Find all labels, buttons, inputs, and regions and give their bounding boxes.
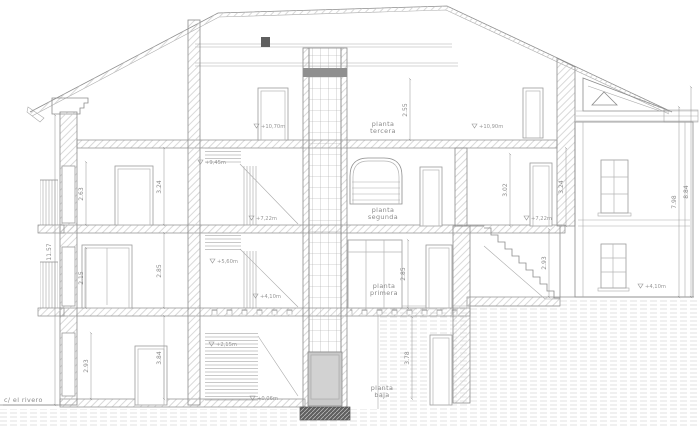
- dim-t3-floor: 3.24: [156, 180, 163, 194]
- rear-window-lower: [601, 244, 626, 288]
- elevator-pit: [300, 407, 350, 420]
- window-in-wall-t3: [62, 166, 75, 223]
- svg-text:+7,22m: +7,22m: [256, 216, 277, 222]
- stair-door-t3: [258, 88, 288, 140]
- label-planta-tercera-2: tercera: [370, 127, 396, 135]
- dim-t1-floor: 3.84: [156, 351, 163, 365]
- label-planta-primera-2: primera: [370, 289, 398, 297]
- roof: [27, 6, 698, 122]
- rear-stair-steps: [484, 228, 560, 298]
- svg-text:+10,90m: +10,90m: [479, 124, 503, 130]
- section-drawing: 11.57 2.63 3.24 2.15 2.85 2.93 3.84 2.55…: [0, 0, 700, 432]
- dim-right-outer: 8.84: [683, 185, 690, 199]
- elevator-head-band: [303, 68, 347, 77]
- wall-stair-left: [188, 20, 200, 405]
- arched-window-segunda: [350, 158, 402, 204]
- level-marker-945: +9,45m: [198, 160, 226, 166]
- treads-landing-560: [205, 233, 241, 250]
- door-primera-center: [426, 245, 452, 308]
- glazing-primera-center: [348, 240, 402, 308]
- elevator-shaft: [300, 48, 350, 420]
- label-planta-baja-2: baja: [374, 391, 389, 399]
- dim-right-inner: 7.98: [671, 195, 678, 209]
- dim-t1-opening: 2.93: [83, 359, 90, 373]
- pediment-vent-triangle: [592, 92, 617, 105]
- street-label-group: c/ el rivero: [3, 396, 58, 405]
- door-left-t3: [115, 166, 153, 225]
- level-marker-ground-rear: +4,10m: [638, 284, 666, 290]
- joists-left: [205, 310, 300, 315]
- svg-text:+5,60m: +5,60m: [217, 259, 238, 265]
- dim-mid-t1: 2.85: [400, 267, 407, 281]
- rear-pediment: [576, 78, 698, 122]
- dim-left-total: 11.57: [46, 243, 53, 260]
- dim-mid-t2: 3.02: [502, 183, 509, 197]
- level-marker-second-rear: +7,22m: [524, 216, 552, 222]
- dim-t2-floor: 2.85: [156, 264, 163, 278]
- dim-mid-t3: 2.55: [402, 103, 409, 117]
- window-in-wall-t1: [62, 333, 75, 396]
- level-marker-third-rear: +10,90m: [472, 124, 503, 130]
- left-room-openings: [82, 166, 167, 405]
- wall-rear-thick: [453, 226, 470, 403]
- level-marker-560: +5,60m: [210, 259, 238, 265]
- roof-chimney: [261, 37, 270, 47]
- dim-t2-opening: 2.15: [78, 271, 85, 285]
- svg-text:+9,45m: +9,45m: [205, 160, 226, 166]
- dim-mid-t0: 3.78: [404, 351, 411, 365]
- slab-rear-ground: [467, 297, 560, 306]
- window-sill-upper: [598, 213, 631, 216]
- dim-rear-t2: 3.24: [558, 180, 565, 194]
- dim-rear-stair: 2.93: [541, 256, 548, 270]
- dim-t3-opening: 2.63: [78, 187, 85, 201]
- cornice-right: [576, 111, 698, 121]
- balcony-railing-t2: [40, 262, 58, 308]
- section-drawing-sheet: 11.57 2.63 3.24 2.15 2.85 2.93 3.84 2.55…: [0, 0, 700, 432]
- window-sill-lower: [598, 288, 629, 291]
- svg-text:+0,06m: +0,06m: [257, 396, 278, 402]
- balcony-railing-t3: [40, 180, 58, 225]
- svg-text:+4,10m: +4,10m: [260, 294, 281, 300]
- stairwell: [205, 88, 298, 402]
- svg-text:+10,70m: +10,70m: [261, 124, 285, 130]
- svg-text:+7,22m: +7,22m: [531, 216, 552, 222]
- street-label: c/ el rivero: [4, 396, 43, 404]
- joists-right: [350, 310, 462, 315]
- wall-rear-upper: [455, 148, 467, 226]
- label-planta-segunda-2: segunda: [368, 213, 398, 221]
- elevator-glazing: [309, 48, 341, 352]
- window-in-wall-t2: [62, 247, 75, 306]
- svg-text:+4,10m: +4,10m: [645, 284, 666, 290]
- rear-window-upper: [601, 160, 628, 213]
- svg-text:+2,15m: +2,15m: [216, 342, 237, 348]
